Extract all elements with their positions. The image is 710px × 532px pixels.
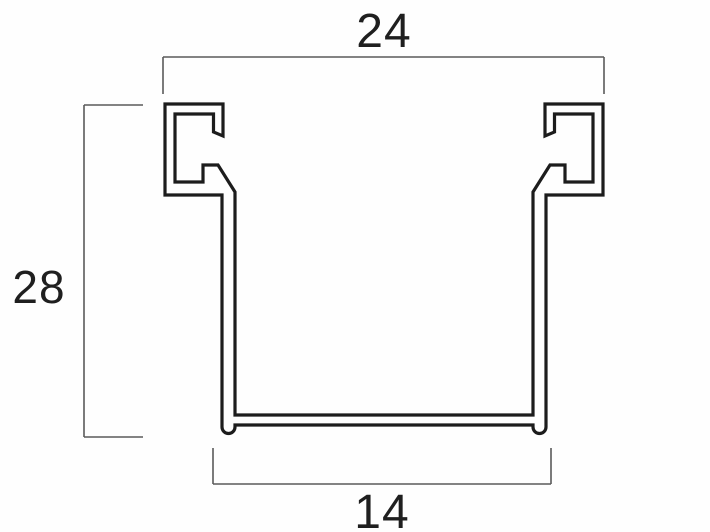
technical-drawing-canvas: 24 28 14: [0, 0, 710, 532]
dimension-bottom-width: [213, 448, 551, 484]
dimension-value-top-width: 24: [324, 8, 444, 56]
dimension-value-left-height: 28: [0, 264, 99, 310]
profile-cross-section-drawing: [0, 0, 710, 532]
dimension-top-width: [163, 57, 604, 94]
dimension-value-bottom-width: 14: [322, 489, 442, 532]
extrusion-profile-outline: [165, 104, 603, 434]
